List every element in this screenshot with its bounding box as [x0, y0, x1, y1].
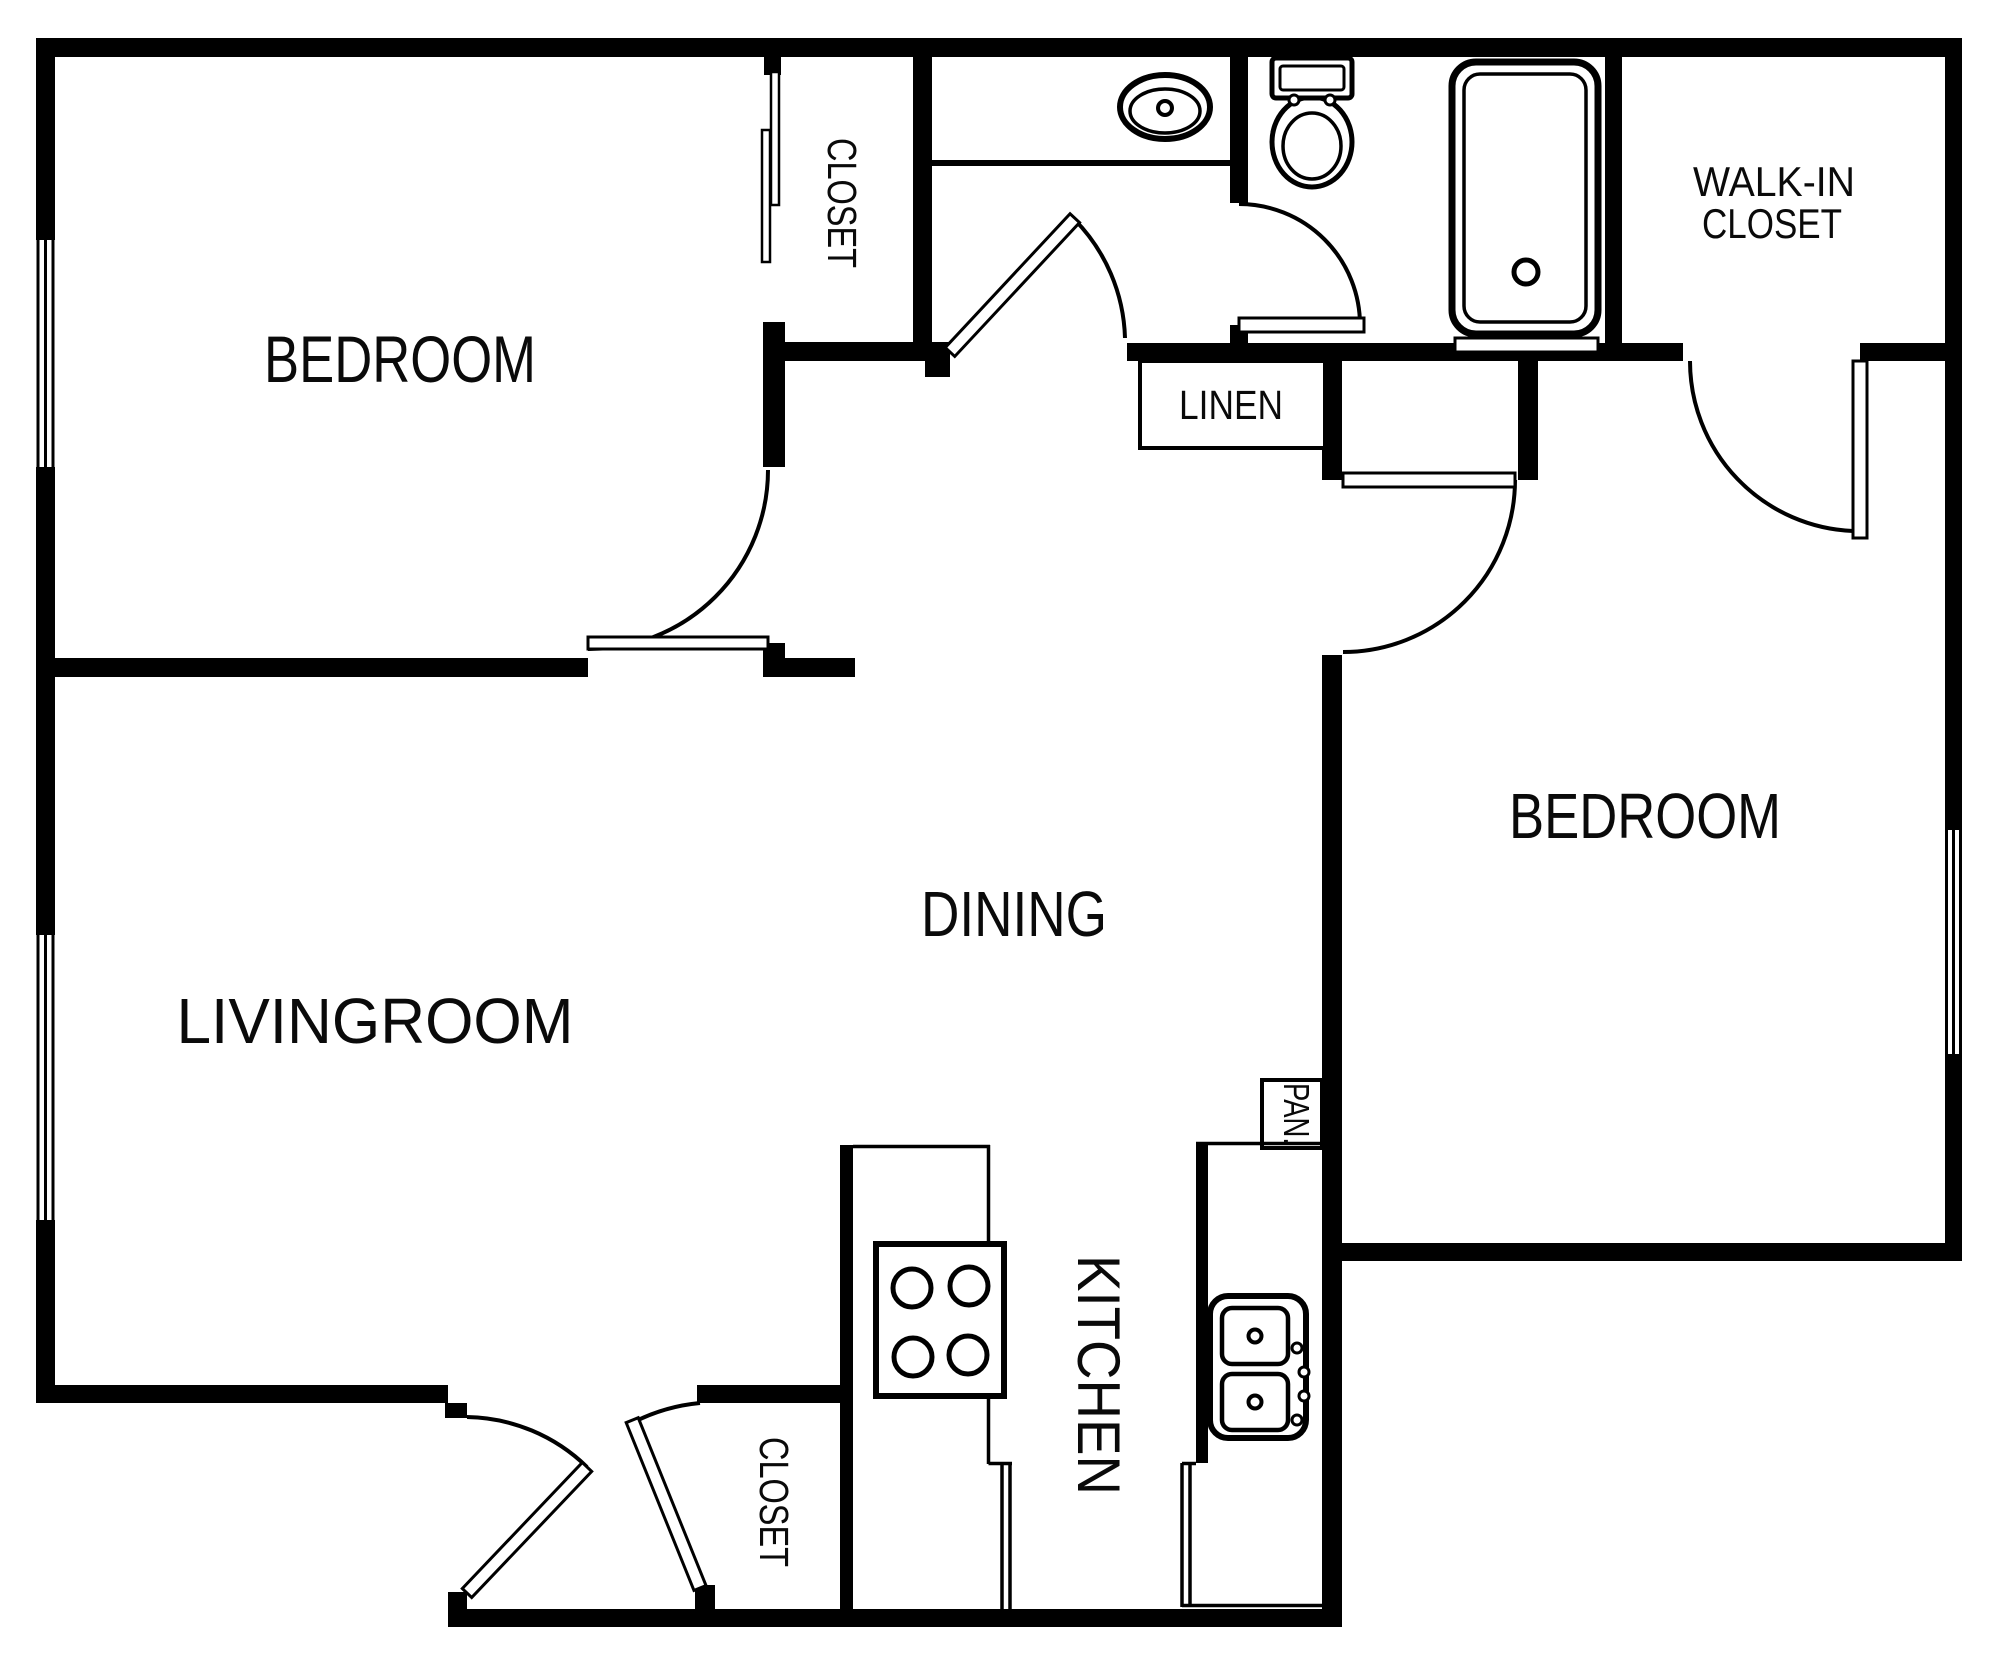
wall-left-c	[36, 1220, 55, 1403]
bedroom2-west-wall-b	[1322, 655, 1342, 1627]
label-closet-top: CLOSET	[819, 138, 865, 268]
toilet-icon	[1272, 58, 1352, 187]
hall-wall-b	[1127, 343, 1683, 361]
label-pantry: PAN.	[1276, 1083, 1317, 1145]
door-tub-room	[1239, 204, 1364, 332]
wall-right-a	[1945, 57, 1962, 830]
wall-right-b	[1945, 1054, 1962, 1261]
entry-jamb-bottom	[448, 1592, 467, 1609]
window-bedroom1-left	[38, 240, 53, 467]
hall-wall-c	[1860, 343, 1945, 361]
window-livingroom-left	[38, 935, 53, 1220]
entry-jamb-top	[445, 1403, 467, 1418]
stove-icon	[876, 1244, 1004, 1396]
label-bedroom-1: BEDROOM	[264, 322, 536, 396]
door-closet2	[626, 1403, 706, 1590]
storage-boxes	[1140, 361, 1325, 1148]
label-kitchen: KITCHEN	[1065, 1255, 1132, 1495]
vanity-counter-edge	[932, 160, 1230, 166]
label-walkin-line2: CLOSET	[1702, 200, 1842, 247]
closet1-sliding-doors	[762, 72, 779, 262]
wall-livingroom-south	[36, 1385, 448, 1403]
window-bedroom2-right	[1947, 830, 1961, 1054]
bathtub-icon	[1452, 62, 1598, 352]
floorplan-svg: BEDROOM CLOSET WALK-IN CLOSET LINEN BEDR…	[0, 0, 2000, 1668]
hall-wall-a	[765, 342, 950, 361]
tub-room-east-wall	[1605, 57, 1622, 361]
label-closet-bottom: CLOSET	[751, 1437, 797, 1567]
bedroom2-north-stub	[1518, 358, 1538, 480]
hall-door-jamb	[925, 361, 950, 377]
wall-south	[448, 1609, 1342, 1627]
closet2-north-wall	[697, 1385, 853, 1403]
door-walkin-closet	[1690, 361, 1867, 538]
closet1-east-wall	[913, 57, 932, 342]
wall-bedroom1-south-a	[36, 658, 588, 677]
label-dining: DINING	[921, 878, 1107, 950]
label-linen: LINEN	[1179, 382, 1283, 428]
wall-left-a	[36, 57, 55, 240]
label-walkin-line1: WALK-IN	[1693, 158, 1855, 205]
door-bedroom1	[588, 470, 768, 649]
label-bedroom-2: BEDROOM	[1509, 780, 1781, 852]
door-bathroom-hall	[945, 214, 1125, 357]
door-entry	[462, 1417, 591, 1597]
kitchen-sink-icon	[1210, 1296, 1309, 1438]
label-livingroom: LIVINGROOM	[177, 985, 574, 1057]
kitchen-west-wall	[840, 1145, 853, 1609]
wall-bedroom1-south-b	[785, 658, 855, 677]
wall-left-b	[36, 467, 55, 935]
door-bedroom2	[1343, 473, 1515, 652]
vanity-sink-icon	[1120, 75, 1210, 139]
wall-top	[36, 38, 1962, 57]
wall-bedroom2-south	[1342, 1243, 1945, 1261]
bath-divider-wall	[1230, 57, 1248, 203]
floorplan-page: BEDROOM CLOSET WALK-IN CLOSET LINEN BEDR…	[0, 0, 2000, 1668]
